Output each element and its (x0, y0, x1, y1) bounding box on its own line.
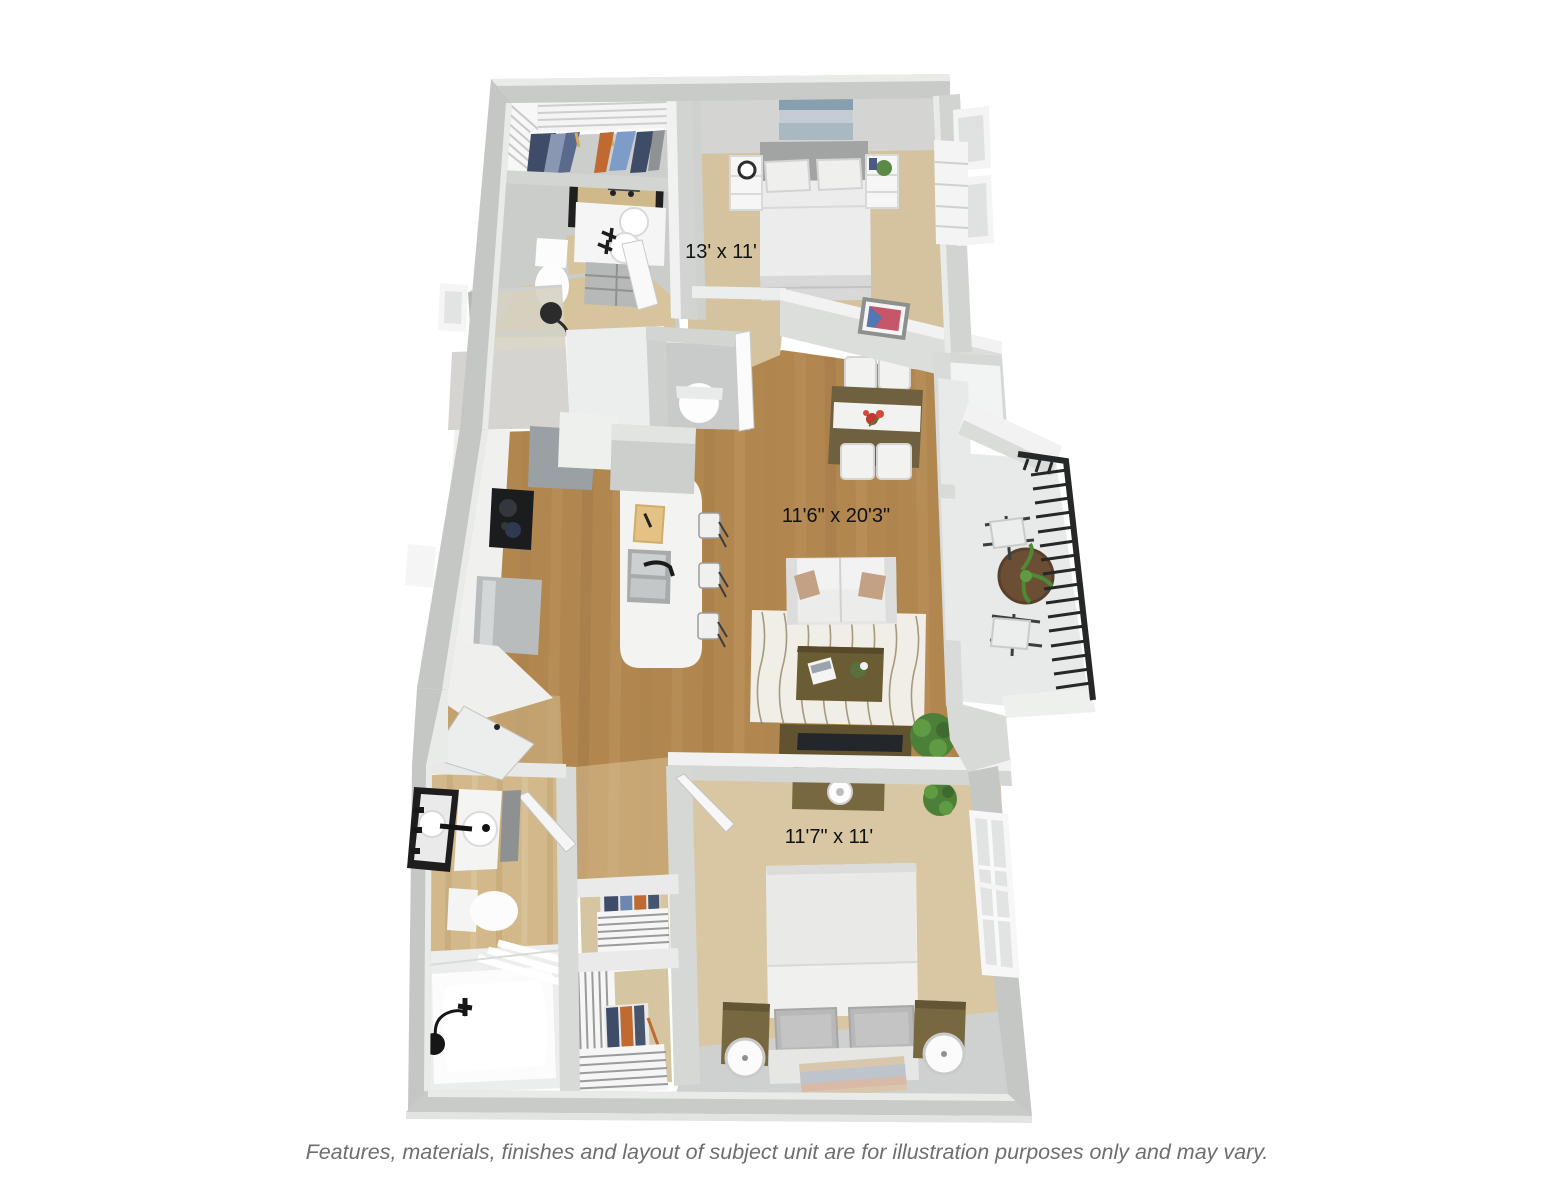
svg-text:Features, materials, finishes: Features, materials, finishes and layout… (306, 1140, 1269, 1164)
svg-text:13' x 11': 13' x 11' (685, 241, 757, 263)
svg-text:11'6" x 20'3": 11'6" x 20'3" (782, 505, 890, 527)
svg-text:11'7" x 11': 11'7" x 11' (785, 826, 874, 848)
